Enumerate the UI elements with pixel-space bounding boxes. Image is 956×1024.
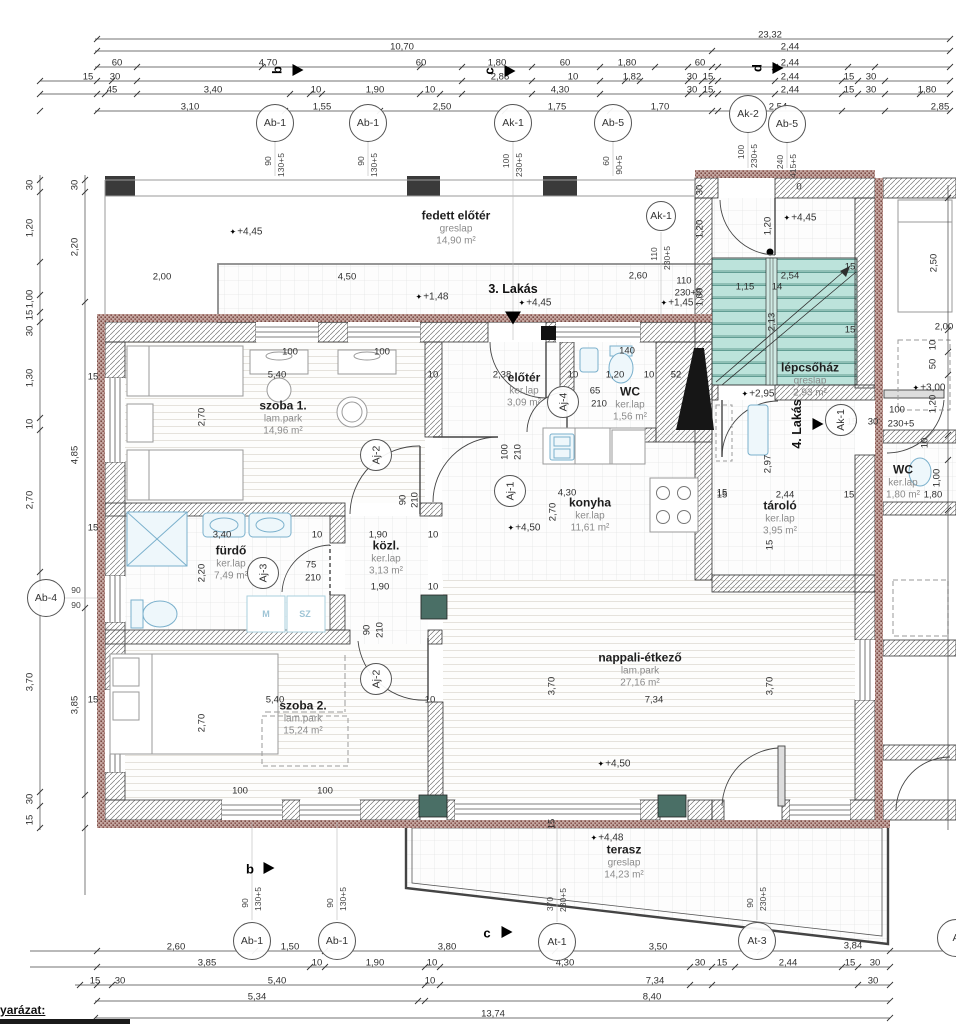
room-label: közl.ker.lap3,13 m²: [369, 539, 403, 578]
elevation-star-icon: ✦: [590, 834, 597, 843]
dim-label: 3,70: [547, 677, 558, 696]
grid-marker-ab-4: Ab-4: [27, 579, 65, 617]
dim-label: 10: [568, 72, 579, 83]
dim-label: 23,32: [758, 30, 782, 41]
marker-sub: 100: [501, 154, 511, 168]
marker-sub: 230+5: [514, 153, 524, 177]
dim-label: 65: [590, 386, 601, 397]
marker-sub: 100: [736, 145, 746, 159]
dim-label: 15: [844, 85, 855, 96]
dim-label: 210: [513, 444, 524, 460]
dim-label: 1,90: [366, 85, 385, 96]
dim-label: 10: [312, 958, 323, 969]
dim-label: 50: [928, 359, 939, 370]
room-label: WCker.lap1,56 m²: [613, 385, 647, 424]
dim-label: 30: [25, 794, 36, 805]
dim-label: 3,50: [649, 942, 668, 953]
section-arrow-icon: [773, 62, 784, 74]
grid-marker-ab-1: Ab-1: [233, 922, 271, 960]
dim-label: 10: [311, 85, 322, 96]
room-rn: lépcsőház: [781, 361, 839, 376]
elevation-star-icon: ✦: [783, 214, 790, 223]
section-letter-d: d: [750, 64, 765, 72]
room-rn: előtér: [507, 371, 541, 386]
dim-label: 1,20: [606, 370, 625, 381]
labels-layer: 23,3210,702,44604,70601,80601,80602,4415…: [0, 0, 956, 1024]
fixture-label: SZ: [299, 609, 311, 619]
marker-sub: 230+5: [662, 246, 672, 270]
elevation-star-icon: ✦: [229, 228, 236, 237]
room-rn: fürdő: [214, 544, 248, 559]
dim-label: 15: [88, 695, 99, 706]
elevation-star-icon: ✦: [415, 293, 422, 302]
dim-label: 10: [428, 582, 439, 593]
marker-sub: 90: [745, 898, 755, 907]
dim-label: 1,80: [618, 58, 637, 69]
dim-label: 10: [920, 438, 931, 449]
dim-label: 90: [398, 495, 409, 506]
dim-label: 10: [312, 530, 323, 541]
dim-label: 10: [25, 419, 36, 430]
dim-label: 60: [416, 58, 427, 69]
dim-label: 2,60: [629, 271, 648, 282]
dim-label: 110: [676, 276, 691, 287]
dim-label: 0: [796, 182, 801, 193]
dim-label: 100: [282, 347, 298, 358]
dim-label: 10: [425, 695, 436, 706]
dim-label: 210: [591, 399, 607, 410]
dim-label: 2,50: [929, 254, 940, 273]
dim-label: 5,40: [268, 370, 287, 381]
dim-label: 30: [110, 72, 121, 83]
grid-marker-ak-1: Ak-1: [825, 404, 857, 436]
marker-sub: 110: [649, 247, 659, 261]
dim-label: 10: [425, 85, 436, 96]
dim-label: 15: [90, 976, 101, 987]
dim-label: 30: [695, 958, 706, 969]
marker-sub: 130+5: [369, 153, 379, 177]
grid-marker-ab-1: Ab-1: [256, 104, 294, 142]
dim-label: 30: [70, 180, 81, 191]
room-label: lépcsőházgreslap2,93 m²: [781, 361, 839, 400]
elevation-star-icon: ✦: [518, 299, 525, 308]
dim-label: 30: [868, 976, 879, 987]
dim-label: 75: [306, 560, 317, 571]
dim-label: 4,50: [338, 272, 357, 283]
marker-sub: 90: [240, 898, 250, 907]
dim-label: 210: [305, 573, 321, 584]
apartment-label: 3. Lakás: [488, 282, 537, 296]
dim-label: 1,55: [313, 102, 332, 113]
room-rf: greslap: [604, 857, 643, 869]
dim-label: 15: [844, 72, 855, 83]
dim-label: 100: [317, 786, 333, 797]
room-label: tárolóker.lap3,95 m²: [763, 499, 797, 538]
dim-label: 5,40: [268, 976, 287, 987]
grid-marker-aj-1: Aj-1: [494, 475, 526, 507]
dim-label: 3,70: [25, 673, 36, 692]
grid-marker-aj-2: Aj-2: [360, 439, 392, 471]
grid-marker-aj-3: Aj-3: [247, 557, 279, 589]
marker-sub: 130+5: [253, 887, 263, 911]
room-label: konyhaker.lap11,61 m²: [569, 496, 611, 535]
room-rn: nappali-étkező: [598, 651, 681, 666]
dim-label: 60: [560, 58, 571, 69]
dim-label: 10: [568, 370, 579, 381]
elevation-marker: ✦+4,50: [507, 523, 540, 534]
marker-sub: 240: [775, 155, 785, 169]
elevation-marker: ✦+4,45: [783, 213, 816, 224]
grid-marker-ab-1: Ab-1: [349, 104, 387, 142]
room-label: teraszgreslap14,23 m²: [604, 843, 643, 882]
room-ra: 1,80 m²: [886, 489, 920, 501]
dim-label: 1,70: [651, 102, 670, 113]
apartment-arrow-icon: [505, 312, 521, 325]
apartment-label: 4. Lakás: [790, 399, 804, 448]
dim-label: 2,44: [781, 85, 800, 96]
dim-label: 30: [25, 180, 36, 191]
marker-sub: 230+5: [758, 887, 768, 911]
room-rf: greslap: [781, 375, 839, 387]
grid-marker-aj-4: Aj-4: [547, 386, 579, 418]
section-letter-c: c: [483, 926, 490, 941]
room-ra: 3,13 m²: [369, 565, 403, 577]
grid-marker-aj-2: Aj-2: [360, 663, 392, 695]
room-rf: lam.park: [598, 665, 681, 677]
dim-label: 15: [845, 325, 856, 336]
dim-label: 30: [866, 85, 877, 96]
dim-label: 60: [112, 58, 123, 69]
dim-label: 2,20: [197, 564, 208, 583]
grid-marker-a: A: [937, 919, 956, 957]
dim-label: 10: [644, 370, 655, 381]
room-rf: ker.lap: [214, 558, 248, 570]
room-rf: ker.lap: [886, 477, 920, 489]
dim-label: 15: [844, 490, 855, 501]
dim-label: 230+5: [888, 419, 915, 430]
dim-label: 3,80: [438, 942, 457, 953]
dim-label: 100: [889, 405, 905, 416]
grid-marker-ak-1: Ak-1: [646, 201, 676, 231]
dim-label: 15: [765, 540, 776, 551]
dim-label: 2,44: [779, 958, 798, 969]
dim-label: 10: [425, 976, 436, 987]
dim-label: 15: [547, 819, 558, 830]
room-ra: 11,61 m²: [569, 522, 611, 534]
dim-label: 15: [845, 262, 856, 273]
section-arrow-icon: [502, 926, 513, 938]
dim-label: 2,13: [767, 313, 778, 332]
dim-label: 2,70: [25, 491, 36, 510]
marker-sub: 90: [71, 600, 80, 610]
elevation-star-icon: ✦: [597, 760, 604, 769]
marker-sub: 370: [545, 897, 555, 911]
room-rn: közl.: [369, 539, 403, 554]
dim-label: 10,70: [390, 42, 414, 53]
section-letter-b: b: [270, 66, 285, 74]
dim-label: 1,00: [25, 290, 36, 309]
room-rf: ker.lap: [569, 510, 611, 522]
room-ra: 1,56 m²: [613, 411, 647, 423]
grid-marker-ab-5: Ab-5: [594, 104, 632, 142]
legend-title: jelmagyarázat:: [0, 1003, 45, 1017]
dim-label: 1,15: [736, 282, 755, 293]
room-rn: szoba 1.: [259, 399, 306, 414]
dim-label: 15: [25, 815, 36, 826]
marker-sub: 90: [263, 156, 273, 165]
dim-label: 15: [717, 490, 728, 501]
dim-label: 2,60: [167, 942, 186, 953]
dim-label: 15: [88, 523, 99, 534]
dim-label: 10: [427, 958, 438, 969]
dim-label: 30: [687, 85, 698, 96]
elevation-marker: ✦+3,00: [912, 383, 945, 394]
room-rn: konyha: [569, 496, 611, 511]
dim-label: 1,82: [623, 72, 642, 83]
dim-label: 15: [717, 958, 728, 969]
dim-label: 2,50: [433, 102, 452, 113]
dim-label: 210: [375, 622, 386, 638]
dim-label: 2,54: [781, 271, 800, 282]
dim-label: 15: [845, 958, 856, 969]
room-rf: lam.park: [279, 713, 326, 725]
dim-label: 1,20: [25, 219, 36, 238]
dim-label: 15: [83, 72, 94, 83]
room-ra: 14,96 m²: [259, 425, 306, 437]
elevation-star-icon: ✦: [741, 390, 748, 399]
dim-label: 3,40: [204, 85, 223, 96]
section-letter-c: c: [482, 67, 497, 74]
dim-label: 1,30: [25, 369, 36, 388]
section-arrow-icon: [264, 862, 275, 874]
dim-label: 4,85: [70, 446, 81, 465]
dim-label: 30: [687, 72, 698, 83]
room-label: fedett előtérgreslap14,90 m²: [422, 209, 491, 248]
room-rf: greslap: [422, 223, 491, 235]
room-label: fürdőker.lap7,49 m²: [214, 544, 248, 583]
room-rn: WC: [613, 385, 647, 400]
room-rn: szoba 2.: [279, 699, 326, 714]
room-ra: 7,49 m²: [214, 570, 248, 582]
dim-label: 10: [428, 530, 439, 541]
marker-sub: 230+5: [558, 888, 568, 912]
dim-label: 30: [868, 417, 879, 428]
dim-label: 100: [232, 786, 248, 797]
dim-label: 140: [619, 346, 635, 357]
dim-label: 15: [88, 372, 99, 383]
marker-sub: 130+5: [338, 887, 348, 911]
room-rn: WC: [886, 463, 920, 478]
dim-label: 1,80: [924, 490, 943, 501]
grid-marker-ak-1: Ak-1: [494, 104, 532, 142]
dim-label: 4,30: [551, 85, 570, 96]
dim-label: 100: [374, 347, 390, 358]
dim-label: 30: [25, 326, 36, 337]
dim-label: 8,40: [643, 992, 662, 1003]
elevation-marker: ✦+4,45: [229, 227, 262, 238]
room-rf: ker.lap: [369, 553, 403, 565]
dim-label: 3,84: [844, 941, 863, 952]
dim-label: 3,40: [213, 530, 232, 541]
dim-label: 1,20: [763, 217, 774, 236]
room-rf: ker.lap: [763, 513, 797, 525]
apartment-arrow-icon: [813, 418, 824, 430]
marker-sub: 130+5: [276, 153, 286, 177]
grid-marker-ab-5: Ab-5: [768, 105, 806, 143]
room-ra: 3,95 m²: [763, 525, 797, 537]
dim-label: 5,34: [248, 992, 267, 1003]
dim-label: 2,70: [197, 714, 208, 733]
grid-marker-at-1: At-1: [538, 923, 576, 961]
dim-label: 1,75: [548, 102, 567, 113]
dim-label: 2,00: [153, 272, 172, 283]
room-rf: ker.lap: [613, 399, 647, 411]
dim-label: 3,10: [181, 102, 200, 113]
dim-label: 3,85: [198, 958, 217, 969]
marker-sub: 90: [325, 898, 335, 907]
floorplan-canvas: 23,3210,702,44604,70601,80601,80602,4415…: [0, 0, 956, 1024]
room-label: WCker.lap1,80 m²: [886, 463, 920, 502]
dim-label: 1,90: [371, 582, 390, 593]
marker-sub: 90+5: [614, 155, 624, 174]
grid-marker-ak-2: Ak-2: [729, 95, 767, 133]
dim-label: 15: [25, 310, 36, 321]
dim-label: 2,97: [763, 455, 774, 474]
dim-label: 1,00: [932, 469, 943, 488]
room-label: szoba 1.lam.park14,96 m²: [259, 399, 306, 438]
dim-label: 2,00: [935, 322, 954, 333]
dim-label: 7,34: [645, 695, 664, 706]
room-ra: 14,90 m²: [422, 235, 491, 247]
dim-label: 2,70: [197, 408, 208, 427]
dim-label: 1,90: [366, 958, 385, 969]
dim-label: 7,34: [646, 976, 665, 987]
dim-label: 210: [410, 492, 421, 508]
dim-label: 2,44: [781, 72, 800, 83]
dim-label: 2,44: [781, 58, 800, 69]
dim-label: 30: [115, 976, 126, 987]
section-arrow-icon: [505, 65, 516, 77]
dim-label: 30: [695, 185, 706, 196]
dim-label: 100: [500, 444, 511, 460]
room-rn: terasz: [604, 843, 643, 858]
elevation-marker: ✦+2,95: [741, 389, 774, 400]
dim-label: 30: [866, 72, 877, 83]
dim-label: 2,70: [548, 503, 559, 522]
room-ra: 3,09 m²: [507, 397, 541, 409]
elevation-marker: ✦+4,45: [518, 298, 551, 309]
room-rf: ker.lap: [507, 385, 541, 397]
dim-label: 3,85: [70, 696, 81, 715]
dim-label: 1,80: [918, 85, 937, 96]
room-ra: 27,16 m²: [598, 677, 681, 689]
dim-label: 2,44: [781, 42, 800, 53]
room-rn: fedett előtér: [422, 209, 491, 224]
dim-label: 30: [870, 958, 881, 969]
dim-label: 10: [928, 340, 939, 351]
dim-label: 90: [362, 625, 373, 636]
dim-label: 52: [671, 370, 682, 381]
marker-sub: 230+5: [749, 144, 759, 168]
dim-label: 14: [772, 282, 783, 293]
room-rn: tároló: [763, 499, 797, 514]
marker-sub: 90: [356, 156, 366, 165]
elevation-marker: ✦+1,48: [415, 292, 448, 303]
dim-label: 15: [703, 72, 714, 83]
dim-label: 13,74: [481, 1009, 505, 1020]
room-rf: lam.park: [259, 413, 306, 425]
dim-label: 10: [428, 370, 439, 381]
marker-sub: 415+5: [788, 154, 798, 178]
dim-label: 3,70: [765, 677, 776, 696]
dim-label: 15: [703, 85, 714, 96]
elevation-star-icon: ✦: [912, 384, 919, 393]
dim-label: 2,20: [70, 238, 81, 257]
marker-sub: 60: [601, 156, 611, 165]
fixture-label: M: [262, 609, 270, 619]
room-ra: 2,93 m²: [781, 387, 839, 399]
dim-label: 1,20: [928, 395, 939, 414]
room-ra: 14,23 m²: [604, 869, 643, 881]
elevation-marker: ✦+4,50: [597, 759, 630, 770]
dim-label: 60: [695, 58, 706, 69]
room-label: szoba 2.lam.park15,24 m²: [279, 699, 326, 738]
room-ra: 15,24 m²: [279, 725, 326, 737]
section-arrow-icon: [293, 64, 304, 76]
elevation-marker: ✦+1,45: [660, 298, 693, 309]
grid-marker-at-3: At-3: [738, 922, 776, 960]
room-label: nappali-étkezőlam.park27,16 m²: [598, 651, 681, 690]
dim-label: 45: [107, 85, 118, 96]
dim-label: 2,85: [931, 102, 950, 113]
dim-label: 1,50: [281, 942, 300, 953]
elevation-star-icon: ✦: [660, 299, 667, 308]
elevation-star-icon: ✦: [507, 524, 514, 533]
grid-marker-ab-1: Ab-1: [318, 922, 356, 960]
room-label: előtérker.lap3,09 m²: [507, 371, 541, 410]
section-letter-b: b: [246, 862, 254, 877]
marker-sub: 90: [71, 585, 80, 595]
dim-label: 1,20: [695, 220, 706, 239]
